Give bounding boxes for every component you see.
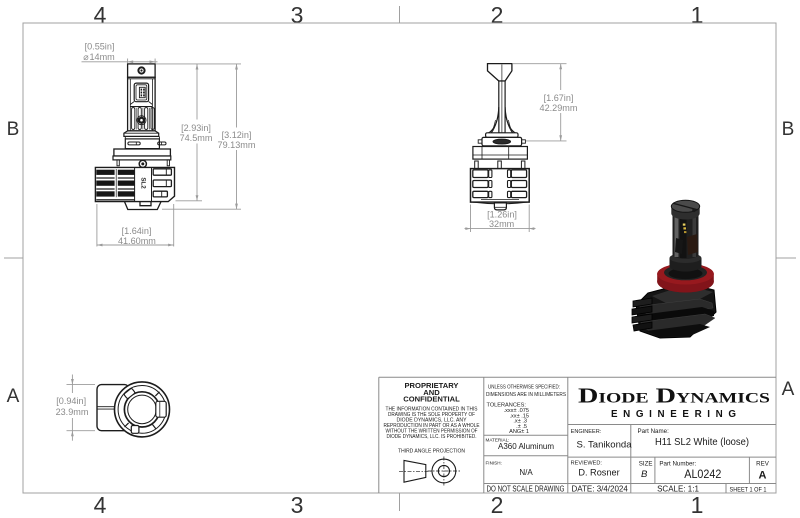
svg-text:FINISH:: FINISH: [486, 461, 502, 466]
svg-text:A: A [782, 379, 795, 400]
svg-text:ENGINEER:: ENGINEER: [571, 429, 602, 435]
svg-text:SCALE: 1:1: SCALE: 1:1 [657, 485, 699, 494]
svg-text:DIMENSIONS ARE IN MILLIMETERS: DIMENSIONS ARE IN MILLIMETERS [486, 392, 566, 398]
svg-text:[1.67in]: [1.67in] [544, 93, 574, 103]
svg-text:2: 2 [491, 2, 504, 28]
svg-text:Part Number:: Part Number: [659, 461, 696, 468]
svg-text:[1.64in]: [1.64in] [122, 226, 152, 236]
svg-text:A360 Aluminum: A360 Aluminum [498, 442, 554, 451]
svg-text:42.29mm: 42.29mm [540, 103, 578, 113]
svg-text:2: 2 [491, 492, 504, 518]
svg-text:4: 4 [94, 2, 107, 28]
svg-text:REV: REV [756, 461, 770, 468]
svg-text:DO NOT SCALE DRAWING: DO NOT SCALE DRAWING [487, 485, 565, 494]
svg-text:ENGINEERING: ENGINEERING [611, 409, 736, 420]
svg-text:4: 4 [94, 492, 107, 518]
svg-text:DATE: 3/4/2024: DATE: 3/4/2024 [572, 485, 629, 494]
svg-text:B: B [7, 119, 20, 140]
svg-text:⌀ 14mm: ⌀ 14mm [83, 52, 115, 62]
svg-text:[0.94in]: [0.94in] [56, 396, 86, 406]
svg-text:UNLESS OTHERWISE SPECIFIED:: UNLESS OTHERWISE SPECIFIED: [488, 385, 560, 391]
svg-text:[1.26in]: [1.26in] [487, 210, 517, 220]
svg-text:[2.93in]: [2.93in] [181, 123, 211, 133]
svg-text:DIODE DYNAMICS, LLC. IS PROHIB: DIODE DYNAMICS, LLC. IS PROHIBITED. [387, 434, 477, 440]
svg-text:REVIEWED:: REVIEWED: [571, 461, 603, 467]
svg-text:Part Name:: Part Name: [638, 428, 670, 435]
svg-text:THIRD ANGLE PROJECTION: THIRD ANGLE PROJECTION [398, 449, 465, 455]
svg-text:SHEET 1 OF 1: SHEET 1 OF 1 [730, 487, 767, 494]
svg-text:[0.55in]: [0.55in] [85, 42, 115, 52]
svg-text:H11 SL2 White (loose): H11 SL2 White (loose) [655, 436, 749, 448]
svg-text:32mm: 32mm [489, 219, 514, 229]
svg-text:Diode Dynamics: Diode Dynamics [578, 384, 770, 408]
svg-text:3: 3 [291, 2, 304, 28]
svg-text:B: B [641, 469, 648, 480]
svg-text:S. Tanikonda: S. Tanikonda [577, 440, 633, 450]
svg-text:74.5mm: 74.5mm [180, 133, 213, 143]
svg-text:[3.12in]: [3.12in] [222, 130, 252, 140]
svg-text:SIZE: SIZE [639, 461, 653, 468]
svg-text:A: A [759, 470, 767, 482]
svg-text:AL0242: AL0242 [684, 469, 721, 481]
svg-text:41.60mm: 41.60mm [118, 236, 156, 246]
svg-text:23.9mm: 23.9mm [56, 407, 89, 417]
svg-text:D. Rosner: D. Rosner [578, 468, 619, 478]
svg-text:CONFIDENTIAL: CONFIDENTIAL [403, 395, 460, 404]
svg-text:ANG± 1: ANG± 1 [509, 429, 529, 435]
svg-text:1: 1 [691, 492, 704, 518]
svg-text:A: A [7, 386, 20, 407]
svg-text:79.13mm: 79.13mm [218, 140, 256, 150]
svg-text:N/A: N/A [519, 468, 533, 477]
svg-text:B: B [782, 119, 795, 140]
svg-text:1: 1 [691, 2, 704, 28]
svg-text:SL2: SL2 [139, 177, 146, 189]
svg-text:3: 3 [291, 492, 304, 518]
